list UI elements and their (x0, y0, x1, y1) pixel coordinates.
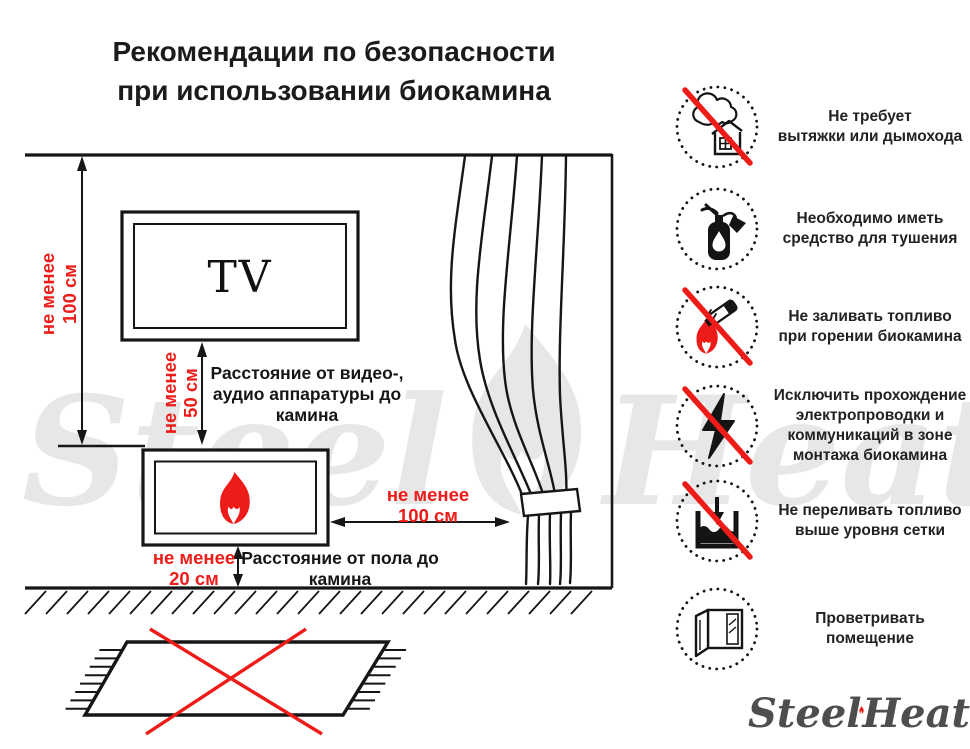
dim-wall-line1: не менее (37, 253, 58, 335)
svg-text:Расстояние от видео-,: Расстояние от видео-, (211, 363, 404, 383)
dimension-floor-20cm: не менее 20 см (153, 546, 243, 589)
recommendation-row-extinguisher: Необходимо иметь средство для тушения (671, 183, 967, 275)
logo-steel-text: Steel (748, 690, 861, 737)
svg-text:камина: камина (276, 405, 339, 425)
recommendation-caption: Необходимо иметь средство для тушения (773, 209, 967, 249)
recommendation-row-ventilation: Проветривать помещение (671, 583, 967, 675)
dimension-tv-50cm: не менее 50 см (159, 342, 207, 445)
caption-floor-distance: Расстояние от пола до камина (241, 548, 439, 589)
prohibition-slash (685, 389, 750, 462)
floor-hatching (25, 591, 592, 614)
svg-text:аудио аппаратуры до: аудио аппаратуры до (213, 384, 401, 404)
recommendation-row-no-wiring: Исключить прохождение электропроводки и … (671, 380, 967, 472)
dim-curtain-line2: 100 см (398, 505, 458, 526)
extinguisher-icon (671, 183, 763, 275)
recommendation-row-no-chimney: Не требует вытяжки или дымохода (671, 81, 967, 173)
curtain-tie (521, 489, 580, 516)
biofireplace (143, 450, 328, 545)
dim-wall-line2: 100 см (59, 264, 80, 324)
steelheat-logo: Steel Heat (748, 682, 970, 744)
dimension-wall-100cm: не менее 100 см (37, 156, 87, 445)
caption-av-equipment: Расстояние от видео-, аудио аппаратуры д… (211, 363, 404, 425)
dim-tv-line2: 50 см (180, 368, 201, 418)
svg-text:камина: камина (309, 569, 372, 589)
carpet-prohibited (66, 629, 407, 734)
recommendation-caption: Не требует вытяжки или дымохода (773, 107, 967, 147)
tv: TV (122, 212, 358, 340)
room-safety-diagram: TV не менее 100 см не менее 50 см Рассто… (0, 140, 660, 749)
dim-floor-line2: 20 см (169, 568, 219, 589)
dim-floor-line1: не менее (153, 547, 235, 568)
prohibition-slash (685, 290, 750, 363)
recommendation-caption: Исключить прохождение электропроводки и … (773, 386, 967, 466)
recommendation-caption: Не заливать топливо при горении биокамин… (773, 307, 967, 347)
dim-curtain-line1: не менее (387, 484, 469, 505)
page-title-line1: Рекомендации по безопасности (34, 32, 634, 71)
dim-tv-line1: не менее (159, 352, 180, 434)
recommendation-caption: Проветривать помещение (773, 609, 967, 649)
recommendation-row-no-refuel: Не заливать топливо при горении биокамин… (671, 281, 967, 373)
recommendation-caption: Не переливать топливо выше уровня сетки (773, 501, 967, 541)
ventilation-icon (671, 583, 763, 675)
logo-heat-text: Heat (862, 690, 970, 737)
recommendation-row-no-overfill: Не переливать топливо выше уровня сетки (671, 475, 967, 567)
page-title: Рекомендации по безопасности при использ… (34, 32, 634, 110)
no-overfill-icon (671, 475, 763, 567)
dimension-curtain-100cm: не менее 100 см (330, 484, 510, 527)
tv-label: TV (207, 252, 272, 303)
curtain (451, 156, 580, 584)
no-chimney-icon (671, 81, 763, 173)
svg-text:Расстояние от пола до: Расстояние от пола до (241, 548, 439, 568)
no-wiring-icon (671, 380, 763, 472)
page-title-line2: при использовании биокамина (34, 71, 634, 110)
no-refuel-while-burning-icon (671, 281, 763, 373)
